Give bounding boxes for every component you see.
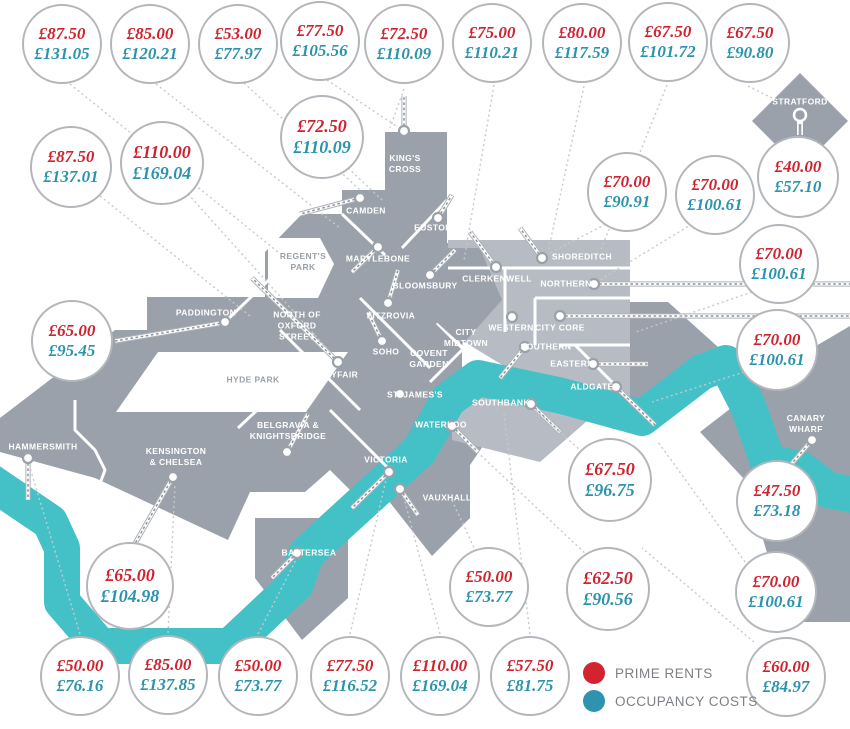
legend-item: PRIME RENTS — [583, 662, 758, 684]
price-bubble: £77.50£116.52 — [310, 636, 390, 716]
occupancy-cost-value: £90.56 — [583, 589, 633, 610]
prime-rent-value: £72.50 — [297, 116, 347, 137]
area-label-marylebone: MARYLEBONE — [346, 253, 410, 264]
occupancy-cost-value: £81.75 — [507, 676, 554, 696]
area-label-clerkenwell: CLERKENWELL — [462, 273, 532, 284]
price-bubble: £60.00£84.97 — [746, 637, 826, 717]
prime-rent-value: £65.00 — [49, 321, 96, 341]
area-label-canary-wharf: CANARY WHARF — [787, 413, 825, 435]
occupancy-cost-value: £116.52 — [323, 676, 377, 696]
area-label-king-s-cross: KING'S CROSS — [389, 153, 421, 175]
prime-rent-value: £60.00 — [763, 657, 810, 677]
area-label-aldgate: ALDGATE — [570, 381, 613, 392]
area-label-eastern: EASTERN — [550, 358, 593, 369]
occupancy-cost-value: £84.97 — [763, 677, 810, 697]
prime-rent-value: £65.00 — [105, 565, 155, 586]
area-label-vauxhall: VAUXHALL — [423, 492, 472, 503]
london-rents-map: STRATFORDKING'S CROSSCAMDENEUSTONREGENT'… — [0, 0, 850, 729]
legend: PRIME RENTSOCCUPANCY COSTS — [583, 662, 758, 718]
price-bubble: £85.00£120.21 — [110, 4, 190, 84]
occupancy-cost-value: £90.91 — [604, 192, 651, 212]
prime-rent-value: £47.50 — [754, 481, 801, 501]
prime-rent-value: £70.00 — [604, 172, 651, 192]
occupancy-cost-value: £100.61 — [749, 350, 804, 370]
prime-rent-value: £85.00 — [145, 655, 192, 675]
area-label-battersea: BATTERSEA — [282, 547, 337, 558]
prime-rent-value: £110.00 — [413, 656, 467, 676]
price-bubble: £50.00£73.77 — [449, 547, 529, 627]
area-label-north-of-oxford-street: NORTH OF OXFORD STREET — [273, 309, 321, 342]
price-bubble: £70.00£100.61 — [735, 551, 817, 633]
price-bubble: £80.00£117.59 — [542, 3, 622, 83]
area-label-city-core: CITY CORE — [535, 322, 585, 333]
area-label-kensington-chelsea: KENSINGTON & CHELSEA — [146, 446, 207, 468]
occupancy-cost-value: £73.77 — [466, 587, 513, 607]
prime-rent-value: £62.50 — [583, 568, 633, 589]
area-label-stratford: STRATFORD — [772, 96, 827, 107]
price-bubble: £67.50£90.80 — [710, 3, 790, 83]
price-bubble: £53.00£77.97 — [198, 4, 278, 84]
occupancy-cost-value: £100.61 — [687, 195, 742, 215]
price-bubble: £50.00£76.16 — [40, 636, 120, 716]
occupancy-cost-value: £104.98 — [101, 586, 160, 607]
occupancy-cost-value: £169.04 — [412, 676, 467, 696]
occupancy-cost-value: £131.05 — [34, 44, 89, 64]
price-bubble: £72.50£110.09 — [364, 4, 444, 84]
area-label-bloomsbury: BLOOMSBURY — [392, 280, 457, 291]
occupancy-cost-value: £169.04 — [133, 163, 192, 184]
prime-rent-value: £70.00 — [756, 244, 803, 264]
area-label-camden: CAMDEN — [346, 205, 386, 216]
prime-rent-value: £40.00 — [775, 157, 822, 177]
prime-rent-value: £70.00 — [753, 572, 800, 592]
area-label-hammersmith: HAMMERSMITH — [8, 441, 77, 452]
prime-rent-value: £50.00 — [57, 656, 104, 676]
occupancy-cost-value: £101.72 — [640, 42, 695, 62]
occupancy-cost-value: £137.85 — [140, 675, 195, 695]
occupancy-cost-value: £57.10 — [775, 177, 822, 197]
area-label-city-midtown: CITY MIDTOWN — [444, 327, 488, 349]
legend-label: OCCUPANCY COSTS — [615, 694, 758, 709]
area-label-paddington: PADDINGTON — [176, 307, 236, 318]
area-label-belgravia-knightsbridge: BELGRAVIA & KNIGHTSBRIDGE — [250, 420, 327, 442]
price-bubble: £47.50£73.18 — [736, 460, 818, 542]
prime-rent-value: £72.50 — [381, 24, 428, 44]
price-bubble: £67.50£96.75 — [568, 438, 652, 522]
occupancy-costs-dot-icon — [583, 690, 605, 712]
price-bubble: £85.00£137.85 — [128, 635, 208, 715]
prime-rent-value: £67.50 — [585, 459, 635, 480]
occupancy-cost-value: £100.61 — [748, 592, 803, 612]
area-label-mayfair: MAYFAIR — [318, 369, 358, 380]
occupancy-cost-value: £73.18 — [754, 501, 801, 521]
price-bubble: £70.00£100.61 — [739, 224, 819, 304]
prime-rent-value: £75.00 — [469, 23, 516, 43]
price-bubble: £65.00£104.98 — [86, 542, 174, 630]
area-label-southern: SOUTHERN — [521, 341, 572, 352]
prime-rent-value: £50.00 — [466, 567, 513, 587]
price-bubble: £40.00£57.10 — [757, 136, 839, 218]
prime-rent-value: £77.50 — [327, 656, 374, 676]
occupancy-cost-value: £105.56 — [292, 41, 347, 61]
occupancy-cost-value: £77.97 — [215, 44, 262, 64]
prime-rent-value: £70.00 — [692, 175, 739, 195]
occupancy-cost-value: £90.80 — [727, 43, 774, 63]
price-bubble: £75.00£110.21 — [452, 3, 532, 83]
price-bubble: £72.50£110.09 — [280, 95, 364, 179]
legend-item: OCCUPANCY COSTS — [583, 690, 758, 712]
price-bubble: £70.00£90.91 — [587, 152, 667, 232]
area-label-st-james-s: ST. JAMES'S — [387, 389, 443, 400]
occupancy-cost-value: £95.45 — [49, 341, 96, 361]
price-bubble: £110.00£169.04 — [120, 121, 204, 205]
area-label-shoreditch: SHOREDITCH — [552, 251, 612, 262]
prime-rent-value: £67.50 — [727, 23, 774, 43]
area-label-northern: NORTHERN — [540, 278, 591, 289]
prime-rent-value: £70.00 — [754, 330, 801, 350]
area-label-western: WESTERN — [488, 322, 533, 333]
occupancy-cost-value: £100.61 — [751, 264, 806, 284]
price-bubble: £70.00£100.61 — [736, 309, 818, 391]
price-bubble: £70.00£100.61 — [675, 155, 755, 235]
prime-rent-value: £87.50 — [39, 24, 86, 44]
area-label-fitzrovia: FITZROVIA — [367, 310, 415, 321]
occupancy-cost-value: £73.77 — [235, 676, 282, 696]
price-bubble: £62.50£90.56 — [566, 547, 650, 631]
price-bubble: £87.50£137.01 — [30, 126, 112, 208]
prime-rent-value: £87.50 — [48, 147, 95, 167]
prime-rent-value: £50.00 — [235, 656, 282, 676]
occupancy-cost-value: £110.09 — [377, 44, 431, 64]
area-label-euston: EUSTON — [414, 222, 452, 233]
price-bubble: £57.50£81.75 — [490, 636, 570, 716]
occupancy-cost-value: £110.09 — [293, 137, 351, 158]
price-bubble: £50.00£73.77 — [218, 636, 298, 716]
prime-rents-dot-icon — [583, 662, 605, 684]
price-bubble: £87.50£131.05 — [22, 4, 102, 84]
prime-rent-value: £53.00 — [215, 24, 262, 44]
occupancy-cost-value: £117.59 — [555, 43, 609, 63]
occupancy-cost-value: £137.01 — [43, 167, 98, 187]
prime-rent-value: £67.50 — [645, 22, 692, 42]
prime-rent-value: £77.50 — [297, 21, 344, 41]
occupancy-cost-value: £110.21 — [465, 43, 519, 63]
area-label-regent-s-park: REGENT'S PARK — [280, 251, 326, 273]
price-bubble: £110.00£169.04 — [400, 636, 480, 716]
legend-label: PRIME RENTS — [615, 666, 713, 681]
area-label-southbank: SOUTHBANK — [472, 397, 530, 408]
occupancy-cost-value: £76.16 — [57, 676, 104, 696]
occupancy-cost-value: £120.21 — [122, 44, 177, 64]
price-bubble: £65.00£95.45 — [31, 300, 113, 382]
prime-rent-value: £57.50 — [507, 656, 554, 676]
area-label-soho: SOHO — [373, 346, 400, 357]
prime-rent-value: £85.00 — [127, 24, 174, 44]
area-label-covent-garden: COVENT GARDEN — [409, 348, 448, 370]
prime-rent-value: £80.00 — [559, 23, 606, 43]
area-label-victoria: VICTORIA — [364, 454, 408, 465]
price-bubble: £77.50£105.56 — [280, 1, 360, 81]
occupancy-cost-value: £96.75 — [585, 480, 635, 501]
area-label-waterloo: WATERLOO — [415, 419, 467, 430]
area-label-hyde-park: HYDE PARK — [226, 374, 279, 385]
price-bubble: £67.50£101.72 — [628, 2, 708, 82]
prime-rent-value: £110.00 — [133, 142, 191, 163]
